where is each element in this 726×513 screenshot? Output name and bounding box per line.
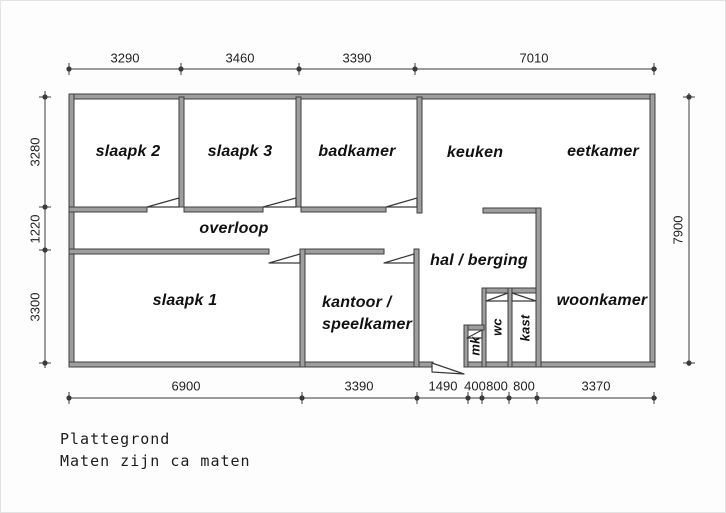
dim-bottom-6: 800 [513,379,535,394]
caption-note: Maten zijn ca maten [60,450,251,472]
dim-top-4: 7010 [520,51,549,66]
caption-title: Plattegrond [60,428,251,450]
dim-bottom-2: 3390 [345,379,374,394]
room-label-slaapk1: slaapk 1 [153,292,218,310]
dim-bottom-1: 6900 [172,379,201,394]
room-label-slaapk2: slaapk 2 [96,143,161,161]
room-label-slaapk3: slaapk 3 [208,143,273,161]
dim-top-3: 3390 [343,51,372,66]
dim-top-2: 3460 [226,51,255,66]
room-label-mk: mk [468,336,483,355]
dim-bottom-5: 800 [486,379,508,394]
dim-top-1: 3290 [111,51,140,66]
dim-left-1: 3280 [28,138,43,167]
room-label-hal-berging: hal / berging [430,252,528,270]
room-label-eetkamer: eetkamer [567,143,639,161]
dim-bottom-3: 1490 [429,379,458,394]
dim-left-2: 1220 [28,215,43,244]
room-label-kantoor: kantoor / speelkamer [322,292,412,336]
room-label-badkamer: badkamer [318,143,395,161]
dim-left-3: 3300 [28,293,43,322]
room-label-kantoor-line2: speelkamer [322,314,412,336]
room-label-woonkamer: woonkamer [557,292,648,310]
room-label-kast: kast [518,315,533,342]
floorplan-canvas: slaapk 2 slaapk 3 badkamer keuken eetkam… [0,0,726,513]
room-label-kantoor-line1: kantoor / [322,292,412,314]
caption-block: Plattegrond Maten zijn ca maten [60,428,251,472]
room-label-keuken: keuken [447,144,503,162]
dim-right-1: 7900 [671,216,686,245]
room-label-overloop: overloop [199,220,268,238]
dim-bottom-7: 3370 [582,379,611,394]
dim-bottom-4: 400 [464,379,486,394]
room-label-wc: wc [490,318,505,336]
